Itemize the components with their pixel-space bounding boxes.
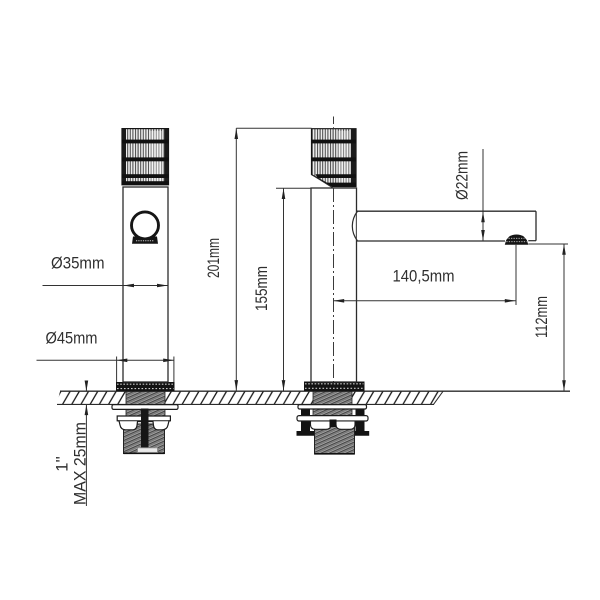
svg-text:201mm: 201mm [205, 238, 223, 278]
svg-text:Ø35mm: Ø35mm [51, 255, 105, 273]
svg-text:140,5mm: 140,5mm [393, 268, 455, 286]
svg-text:Ø45mm: Ø45mm [46, 330, 98, 348]
svg-text:112mm: 112mm [533, 296, 551, 338]
svg-text:155mm: 155mm [253, 266, 271, 311]
svg-text:1'': 1'' [54, 456, 72, 471]
svg-text:Ø22mm: Ø22mm [454, 151, 472, 200]
